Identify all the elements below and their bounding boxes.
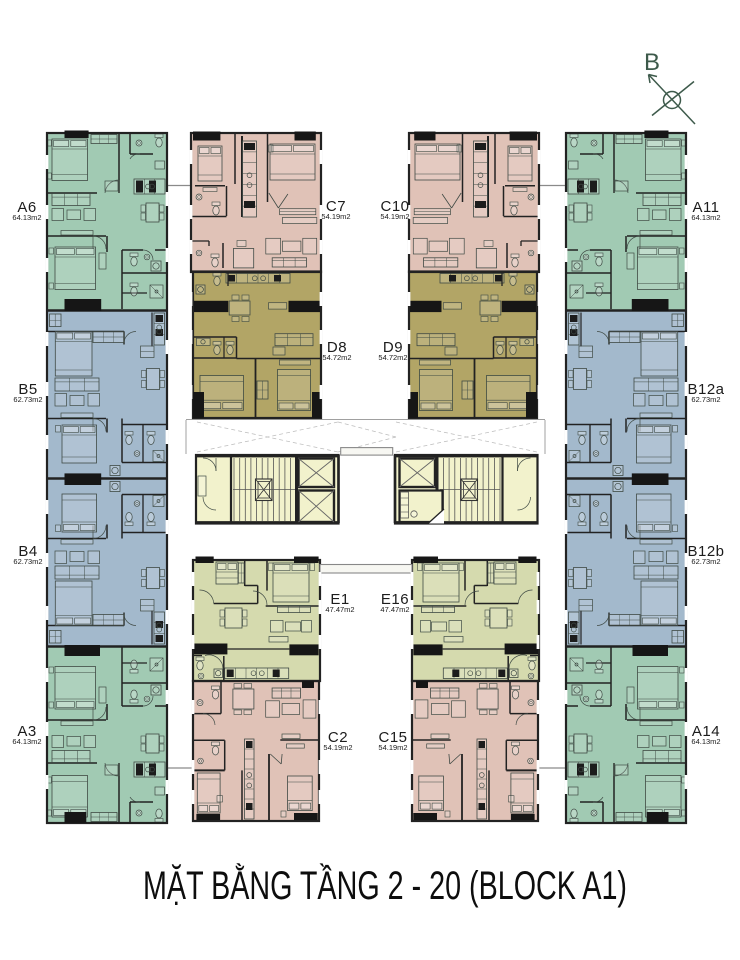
- svg-text:64.13m2: 64.13m2: [691, 737, 720, 746]
- svg-text:B: B: [644, 49, 660, 76]
- svg-text:62.73m2: 62.73m2: [691, 557, 720, 566]
- svg-text:54.19m2: 54.19m2: [323, 743, 352, 752]
- svg-text:64.13m2: 64.13m2: [12, 737, 41, 746]
- svg-text:62.73m2: 62.73m2: [13, 557, 42, 566]
- svg-text:64.13m2: 64.13m2: [12, 213, 41, 222]
- svg-text:54.19m2: 54.19m2: [380, 212, 409, 221]
- svg-text:54.72m2: 54.72m2: [378, 353, 407, 362]
- svg-text:47.47m2: 47.47m2: [380, 605, 409, 614]
- svg-text:64.13m2: 64.13m2: [691, 213, 720, 222]
- svg-text:62.73m2: 62.73m2: [691, 395, 720, 404]
- svg-text:MẶT BẰNG TẦNG 2 - 20 (BLOCK A: MẶT BẰNG TẦNG 2 - 20 (BLOCK A1): [143, 862, 627, 908]
- svg-text:62.73m2: 62.73m2: [13, 395, 42, 404]
- svg-text:54.19m2: 54.19m2: [321, 212, 350, 221]
- svg-text:47.47m2: 47.47m2: [325, 605, 354, 614]
- svg-text:54.72m2: 54.72m2: [322, 353, 351, 362]
- svg-text:54.19m2: 54.19m2: [378, 743, 407, 752]
